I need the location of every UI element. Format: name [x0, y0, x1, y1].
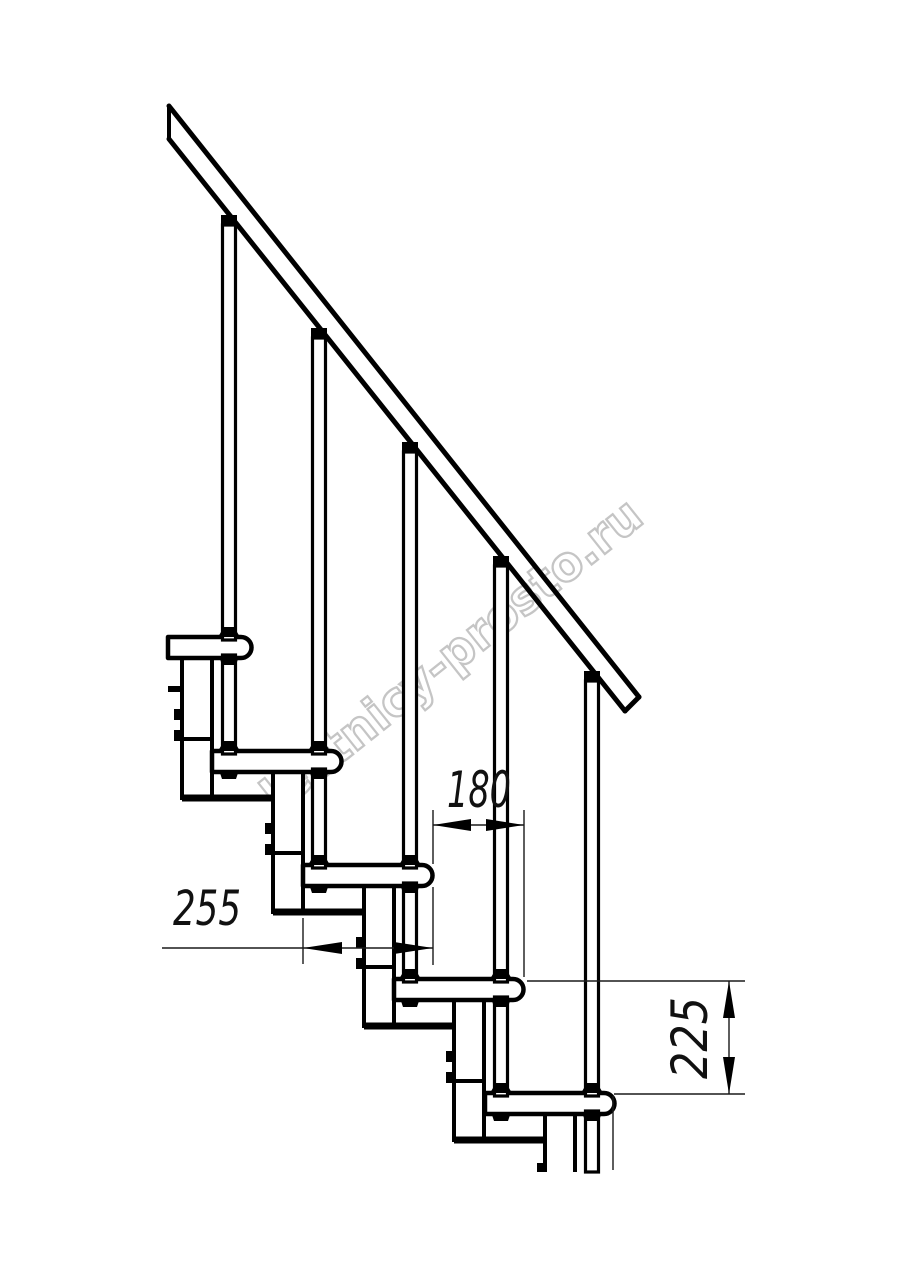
dimension-run-label: 180 — [447, 761, 511, 819]
baluster-3 — [402, 442, 418, 982]
bolt-tab — [446, 1051, 454, 1062]
arrowhead-up — [723, 981, 735, 1018]
technical-drawing-page: lestnicy-prosto.ru — [0, 0, 914, 1280]
arrowhead-left — [433, 819, 471, 831]
bolt-tab — [356, 958, 364, 969]
bolt-tab — [537, 1163, 545, 1172]
bolt-tab — [265, 844, 273, 855]
dimension-riser-label: 225 — [661, 997, 719, 1079]
bolt-tab — [174, 730, 182, 741]
dimension-run-180: 180 — [433, 761, 524, 977]
bolt-tab — [356, 937, 364, 948]
handrail-end-cut — [625, 697, 639, 711]
bolt-tab — [446, 1072, 454, 1083]
bolt-tab — [265, 823, 273, 834]
dimension-riser-225: 225 — [527, 981, 745, 1094]
baluster-2 — [311, 328, 327, 868]
bolt-tab — [174, 709, 182, 720]
baluster-1 — [221, 215, 237, 754]
arrowhead-left — [303, 942, 342, 954]
tread-1 — [168, 637, 252, 658]
staircase-drawing: lestnicy-prosto.ru — [0, 0, 914, 1280]
handrail-lower-edge — [169, 139, 625, 711]
dimension-tread-depth-label: 255 — [173, 881, 241, 937]
arrowhead-down — [723, 1057, 735, 1094]
baluster-5 — [584, 671, 600, 1172]
